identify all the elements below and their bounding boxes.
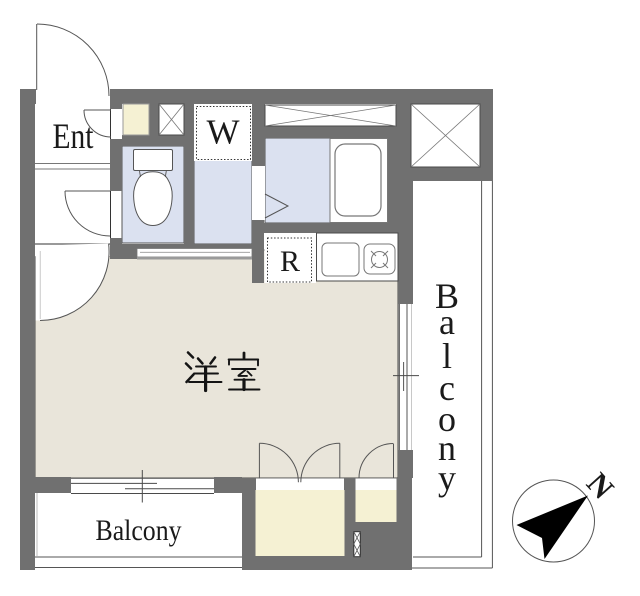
svg-text:Ent: Ent [53, 116, 94, 156]
svg-text:R: R [280, 245, 300, 278]
svg-text:Balcony: Balcony [96, 514, 182, 547]
svg-text:W: W [206, 113, 239, 152]
svg-text:y: y [438, 458, 456, 498]
